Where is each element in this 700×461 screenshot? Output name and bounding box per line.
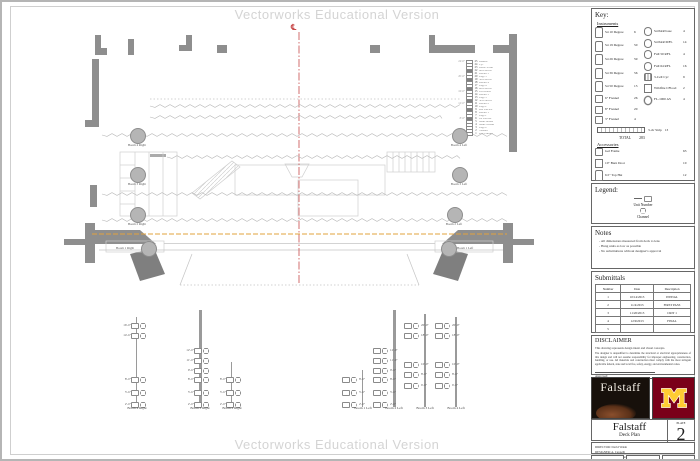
boom-position-circle <box>452 167 468 183</box>
instruments-heading: Instruments <box>597 21 691 26</box>
key-item: 3-Cell Cyc 9 <box>644 73 691 81</box>
submittal-description: FINAL <box>654 317 691 325</box>
unit-height-label: 5'-6" <box>158 391 194 394</box>
unit-height-label: 20'-0" <box>450 324 488 327</box>
boom-position-label: Boom 1 Right <box>116 246 134 250</box>
unit-symbol <box>404 323 412 329</box>
total-label: TOTAL <box>619 136 631 140</box>
notes-title: Notes <box>595 229 691 237</box>
unit-channel-hexagon <box>235 390 242 396</box>
legend-channel-label: Channel <box>637 215 649 219</box>
instrument-count: 56 <box>634 72 642 75</box>
falstaff-logo-text: Falstaff <box>592 380 649 395</box>
drawn-by-cell: DRAWN BY: AC <box>662 455 695 461</box>
total-row: TOTAL 283 <box>619 136 691 140</box>
key-item: S4 36 Degree 56 <box>595 68 642 79</box>
key-item: S4 PAR MFL 14 <box>644 39 691 48</box>
boom-unit: 5'-6" <box>190 390 274 396</box>
instrument-icon <box>644 27 652 36</box>
boom-unit: 6'-0" <box>414 383 498 389</box>
centerline-symbol: ℄ <box>291 23 296 32</box>
accessories-heading: Accessories <box>597 142 691 147</box>
instrument-count: 4 <box>634 118 642 121</box>
instrument-count: 59 <box>634 58 642 61</box>
key-item: S4 50 Degree 13 <box>595 81 642 92</box>
submittal-description <box>654 325 691 333</box>
unit-channel-hexagon <box>140 323 147 329</box>
submittal-description: CRIT 1 <box>654 309 691 317</box>
legend-panel: Legend: Unit Number Channel <box>591 183 695 224</box>
unit-symbol <box>435 383 443 389</box>
legend-title: Legend: <box>595 186 691 194</box>
submittals-col-date: Date <box>621 285 654 293</box>
instrument-count: 50 <box>634 44 642 47</box>
plate-number: 2 <box>668 425 694 443</box>
unit-symbol <box>404 383 412 389</box>
disclaimer-title: DISCLAIMER <box>595 338 691 344</box>
accessory-item: Gel Frame 63 <box>595 148 691 156</box>
instrument-icon <box>644 96 652 105</box>
unit-height-label: 12'-0" <box>158 349 194 352</box>
minnesota-block-m-logo <box>652 377 695 419</box>
instrument-count: 13 <box>634 85 642 88</box>
submittal-number: 5 <box>596 325 621 333</box>
soft-goods-zigzag <box>150 116 442 119</box>
boom-position-label: Boom 4 Right <box>119 143 155 147</box>
instrument-icon <box>644 84 652 93</box>
instrument-name: 3-Cell Cyc <box>654 76 681 79</box>
lineset-number: 1 <box>474 133 478 136</box>
submittals-panel: Submittals Number Date Description 1 10/… <box>591 271 695 333</box>
instrument-name: 6" Fresnel <box>605 97 632 100</box>
unit-channel-hexagon <box>140 377 147 383</box>
submittal-number: 2 <box>596 301 621 309</box>
key-item: Wildfire CFlood 2 <box>644 84 691 93</box>
submittal-number: 4 <box>596 317 621 325</box>
instrument-count: 26 <box>634 97 642 100</box>
accessory-icon <box>595 159 603 168</box>
unit-symbol <box>131 390 139 396</box>
instrument-icon <box>644 73 652 81</box>
unit-symbol <box>435 333 443 339</box>
soft-goods-zigzag <box>102 134 507 137</box>
sheet-title: Deck Plan <box>592 433 667 438</box>
submittal-description: INITIAL <box>654 293 691 301</box>
instrument-name: S4 10 Degree <box>605 31 632 34</box>
key-item: FL-1000 AS 4 <box>644 96 691 105</box>
submittal-date: 10/14/2013 <box>621 293 654 301</box>
submittal-number: 3 <box>596 309 621 317</box>
unit-height-label: 10'-0" <box>450 363 488 366</box>
boom-position-circle <box>130 128 146 144</box>
submittal-row: 4 12/9/2013 FINAL <box>596 317 691 325</box>
unit-height-label: 14'-6" <box>95 334 131 337</box>
instrument-count: 6 <box>634 31 642 34</box>
boom-position-label: Boom 3 Left <box>441 182 477 186</box>
boom-unit: 10'-0" <box>414 362 498 368</box>
strip-light-item: 3-cir Strip 13 <box>597 127 691 133</box>
unit-symbol <box>131 323 139 329</box>
boom-position-label: Boom 1 Left <box>457 246 473 250</box>
instrument-name: Full 64 RFL <box>654 65 681 68</box>
unit-height-label: 8'-0" <box>450 373 488 376</box>
instrument-name: Full 50 RFL <box>654 53 681 56</box>
instrument-count: 16 <box>683 65 691 68</box>
instrument-count: 4 <box>683 30 691 33</box>
title-block: Falstaff Deck Plan PLATE 2 OF 6 <box>591 419 695 441</box>
key-item: S4 10 Degree 6 <box>595 27 642 38</box>
accessory-count: 10 <box>683 162 691 165</box>
instrument-name: 3" Fresnel <box>605 118 632 121</box>
unit-symbol <box>435 372 443 378</box>
boom-position-circle <box>452 128 468 144</box>
accessory-item: 6.5" Top Hat 12 <box>595 170 691 181</box>
unit-symbol <box>373 358 381 364</box>
instrument-icon <box>595 41 603 52</box>
key-item: 8" Fresnel 20 <box>595 106 642 114</box>
platform-outlines <box>106 152 493 252</box>
submittal-row: 1 10/14/2013 INITIAL <box>596 293 691 301</box>
submittal-row: 2 11/4/2013 FIRST PASS <box>596 301 691 309</box>
accessory-icon <box>595 148 603 156</box>
falstaff-show-logo: Falstaff <box>591 377 650 419</box>
date-cell: DATE: 10/14/2013 <box>591 455 624 461</box>
boom-position-circle <box>441 241 457 257</box>
instrument-name: S4 36 Degree <box>605 72 632 75</box>
unit-symbol <box>342 377 350 383</box>
title-bottom-row: DATE: 10/14/2013 SCALE: 1/4" = 1'-0" DRA… <box>591 455 695 461</box>
logo-row: Falstaff <box>591 377 695 419</box>
disclaimer-panel: DISCLAIMER This drawing represents desig… <box>591 335 695 375</box>
soft-goods-zigzag <box>102 219 507 222</box>
strip-light-icon <box>597 127 645 133</box>
submittal-row: 5 <box>596 325 691 333</box>
lineset-schedule: 24'-0" 25 Bounce 24 Cyc 23 Black Scrim 2… <box>450 61 512 135</box>
instrument-count: 9 <box>683 76 691 79</box>
unit-height-label: 18'-0" <box>450 334 488 337</box>
lineset-label: Fire Curtain <box>479 133 493 136</box>
unit-symbol <box>131 377 139 383</box>
submittal-number: 1 <box>596 293 621 301</box>
total-count: 283 <box>639 136 645 140</box>
unit-height-label: 6'-0" <box>450 384 488 387</box>
boom-position-circle <box>130 167 146 183</box>
strip-light-name: 3-cir Strip <box>648 128 662 132</box>
submittal-date <box>621 325 654 333</box>
submittals-col-number: Number <box>596 285 621 293</box>
boom-position-circle <box>447 207 463 223</box>
accessory-count: 63 <box>683 150 691 153</box>
instrument-icon <box>595 116 603 124</box>
unit-symbol <box>226 377 234 383</box>
accessory-name: 10" Barn Door <box>605 162 681 165</box>
accessory-count: 12 <box>683 174 691 177</box>
key-item: 6" Fresnel 26 <box>595 95 642 103</box>
boom-position-label: Boom 3 Right <box>119 182 155 186</box>
unit-height-label: 5'-6" <box>95 391 131 394</box>
instrument-icon <box>595 27 603 38</box>
submittals-table: Number Date Description 1 10/14/2013 INI… <box>595 284 691 333</box>
signature-line <box>595 372 655 373</box>
instrument-icon <box>595 106 603 114</box>
boom-position-label: Boom 2 Left <box>436 222 472 226</box>
key-item: 3" Fresnel 4 <box>595 116 642 124</box>
boom-position-label: Boom 4 Left <box>441 143 477 147</box>
accessory-icon <box>595 170 603 181</box>
key-title: Key: <box>595 11 691 19</box>
boom-unit: 18'-0" <box>414 333 498 339</box>
boom-position-circle <box>141 241 157 257</box>
instrument-count: 14 <box>683 41 691 44</box>
legend-unit-number-label: Unit Number <box>633 203 652 207</box>
boom-elevation: 20'-0"18'-0"10'-0"8'-0"6'-0"Boom 4 Left <box>414 307 498 417</box>
instrument-name: 8" Fresnel <box>605 108 632 111</box>
unit-symbol <box>435 362 443 368</box>
key-item: Full 50 RFL 4 <box>644 50 691 59</box>
disclaimer-intro: This drawing represents design intent an… <box>595 346 691 350</box>
submittals-title: Submittals <box>595 274 691 282</box>
unit-height-label: 8'-0" <box>95 378 131 381</box>
instrument-icon <box>595 81 603 92</box>
submittal-date: 12/9/2013 <box>621 317 654 325</box>
instrument-icon <box>644 39 652 48</box>
note-item: No substitutions without designer's appr… <box>599 249 691 254</box>
instrument-count: 20 <box>634 108 642 111</box>
unit-symbol <box>373 390 381 396</box>
boom-unit: 8'-0" <box>414 372 498 378</box>
unit-channel-hexagon <box>235 377 242 383</box>
accessory-name: Gel Frame <box>605 150 681 153</box>
unit-symbol <box>342 390 350 396</box>
falstaff-logo-artwork <box>596 404 636 419</box>
unit-symbol <box>373 368 381 374</box>
legend-channel-hexagon <box>640 208 647 214</box>
instrument-name: S4 19 Degree <box>605 44 632 47</box>
instrument-icon <box>644 62 652 71</box>
drawing-sheet: Vectorworks Educational Version Vectorwo… <box>0 0 700 461</box>
sidebar: Key: Instruments S4 10 Degree 6 S4 19 De… <box>590 6 698 460</box>
boom-elevation: 8'-0"5'-6"2'-0"Boom 2 Right <box>190 307 274 417</box>
unit-symbol <box>373 377 381 383</box>
boom-elevation-label: Boom 2 Right <box>190 406 274 410</box>
soft-goods-zigzag <box>150 105 460 108</box>
unit-symbol <box>404 333 412 339</box>
boom-unit: 8'-0" <box>190 377 274 383</box>
instrument-count: 2 <box>683 87 691 90</box>
instrument-count: 4 <box>683 53 691 56</box>
block-m-icon <box>659 383 689 413</box>
unit-symbol <box>226 390 234 396</box>
instrument-icon <box>595 68 603 79</box>
unit-symbol <box>373 348 381 354</box>
unit-symbol <box>435 323 443 329</box>
disclaimer-body: The designer is unqualified to determine… <box>595 352 691 367</box>
scale-cell: SCALE: 1/4" = 1'-0" <box>626 455 659 461</box>
unit-symbol <box>131 333 139 339</box>
unit-height-label: 5'-6" <box>190 391 226 394</box>
boom-position-label: Boom 2 Right <box>119 222 155 226</box>
unit-symbol <box>404 372 412 378</box>
unit-symbol <box>404 362 412 368</box>
submittal-date: 11/20/2013 <box>621 309 654 317</box>
unit-height-label: 8'-0" <box>190 378 226 381</box>
submittal-row: 3 11/20/2013 CRIT 1 <box>596 309 691 317</box>
unit-channel-hexagon <box>140 390 147 396</box>
instrument-name: S4 PAR base <box>654 30 681 33</box>
instrument-name: FL-1000 AS <box>654 98 681 101</box>
key-item: Full 64 RFL 16 <box>644 62 691 71</box>
instrument-name: S4 26 Degree <box>605 58 632 61</box>
instrument-name: S4 PAR MFL <box>654 41 681 44</box>
key-panel: Key: Instruments S4 10 Degree 6 S4 19 De… <box>591 8 695 181</box>
instrument-icon <box>644 50 652 59</box>
unit-channel-hexagon <box>140 333 147 339</box>
soft-goods-zigzag <box>167 156 460 159</box>
instrument-name: S4 50 Degree <box>605 85 632 88</box>
key-item: S4 19 Degree 50 <box>595 41 642 52</box>
submittal-description: FIRST PASS <box>654 301 691 309</box>
instrument-count: 4 <box>683 98 691 101</box>
strip-light-count: 13 <box>665 128 668 132</box>
key-item: S4 PAR base 4 <box>644 27 691 36</box>
show-title: Falstaff <box>592 421 667 433</box>
production-info: DIRECTOR: David WalshDESIGNER: A. Cappel… <box>591 442 695 454</box>
accessory-item: 10" Barn Door 10 <box>595 159 691 168</box>
unit-height-label: 11'-0" <box>158 359 194 362</box>
boom-unit: 20'-0" <box>414 323 498 329</box>
submittals-col-description: Description <box>654 285 691 293</box>
boom-pipe-line <box>231 362 232 407</box>
instrument-icon <box>595 54 603 65</box>
instrument-name: Wildfire CFlood <box>654 87 681 90</box>
unit-height-label: 8'-0" <box>158 378 194 381</box>
legend-unit-symbol <box>634 196 652 202</box>
unit-height-label: 16'-0" <box>95 324 131 327</box>
key-item: S4 26 Degree 59 <box>595 54 642 65</box>
boom-position-circle <box>130 207 146 223</box>
notes-panel: Notes All dimensions measured from deck … <box>591 226 695 269</box>
boom-elevation-label: Boom 4 Left <box>414 406 498 410</box>
instrument-icon <box>595 95 603 103</box>
accessory-name: 6.5" Top Hat <box>605 174 681 177</box>
unit-height-label: 9'-6" <box>158 369 194 372</box>
submittal-date: 11/4/2013 <box>621 301 654 309</box>
